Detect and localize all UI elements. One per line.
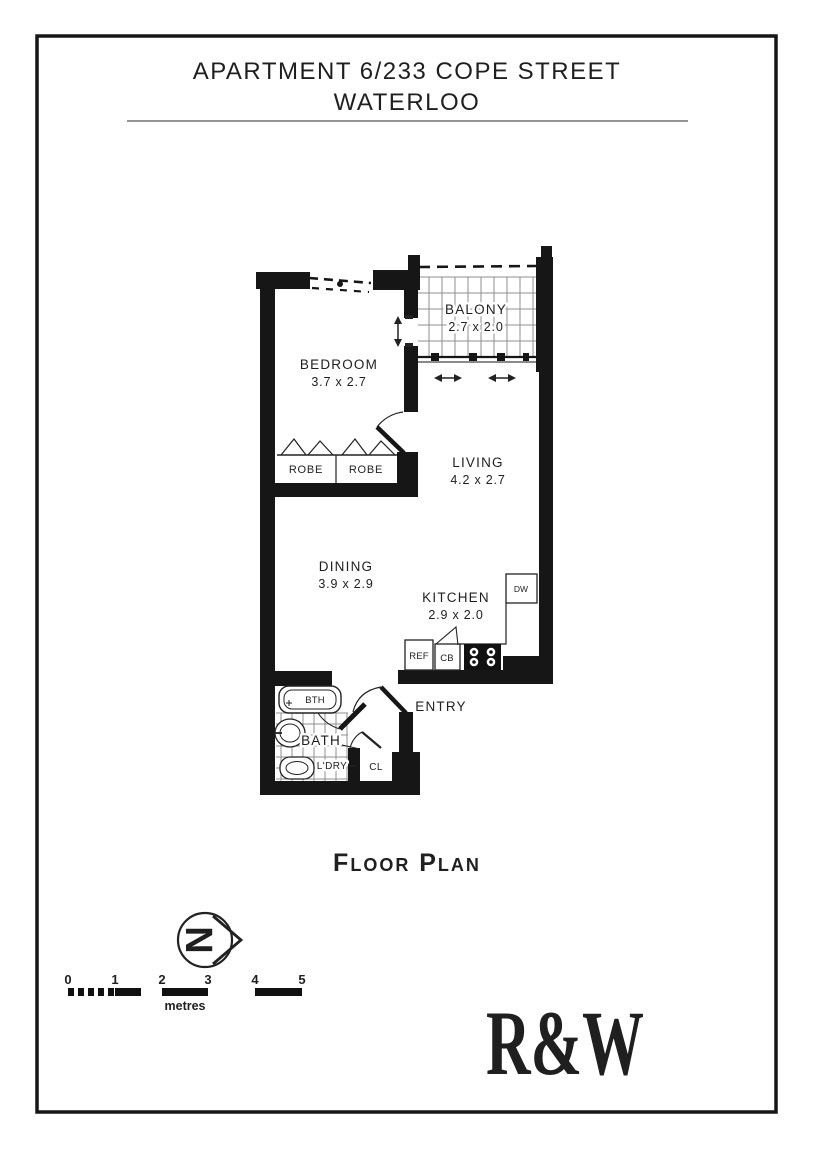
- fridge-label: REF: [409, 651, 429, 662]
- floor-plan-page: APARTMENT 6/233 COPE STREET WATERLOO: [0, 0, 814, 1150]
- page-subtitle: WATERLOO: [334, 89, 481, 116]
- robe-bifold-doors: [277, 439, 397, 483]
- robe-right-label: ROBE: [349, 464, 383, 476]
- bedroom-balcony-door-arrow: [394, 315, 413, 347]
- scale-tick-4: 4: [251, 972, 259, 987]
- balcony-sliding-track: [418, 353, 536, 362]
- bathtub-label: BTH: [305, 695, 325, 706]
- page-title: APARTMENT 6/233 COPE STREET: [193, 58, 622, 85]
- bedroom-label: BEDROOM: [300, 357, 378, 372]
- dining-label: DINING: [319, 559, 373, 574]
- scale-tick-0: 0: [64, 972, 71, 987]
- cupboard-door-line: [436, 627, 458, 645]
- agency-logo: R&W: [486, 992, 644, 1094]
- scale-tick-5: 5: [298, 972, 305, 987]
- scale-tick-2: 2: [158, 972, 165, 987]
- living-dims: 4.2 x 2.7: [450, 473, 505, 487]
- bedroom-window-dashed: [309, 278, 371, 292]
- north-indicator: N: [177, 913, 241, 967]
- page-border: [37, 36, 776, 1112]
- floor-plan-caption: Floor Plan: [333, 849, 481, 877]
- sliding-door-arrows: [434, 374, 516, 382]
- kitchen-label: KITCHEN: [422, 590, 490, 605]
- scale-tick-3: 3: [204, 972, 211, 987]
- scale-tick-1: 1: [111, 972, 118, 987]
- toilet: [280, 757, 314, 779]
- scale-unit-label: metres: [165, 999, 206, 1013]
- bedroom-door: [377, 412, 404, 453]
- balcony-edge-dashed: [419, 266, 536, 267]
- entry-label: ENTRY: [415, 699, 467, 714]
- closet-door: [350, 732, 381, 748]
- cupboard-label: CB: [440, 653, 454, 664]
- dining-dims: 3.9 x 2.9: [318, 577, 373, 591]
- floor-plan: BALONY 2.7 x 2.0 BEDROOM 3.7 x 2.7 LIVIN…: [256, 246, 553, 795]
- dishwasher-label: DW: [514, 584, 528, 594]
- balcony-label: BALONY: [445, 302, 507, 317]
- bath-label: BATH: [301, 733, 341, 748]
- robe-left-label: ROBE: [289, 464, 323, 476]
- laundry-label: L'DRY: [317, 761, 347, 772]
- kitchen-dims: 2.9 x 2.0: [428, 608, 483, 622]
- scale-bar-segments: [68, 988, 302, 996]
- north-letter: N: [177, 926, 219, 953]
- balcony-dims: 2.7 x 2.0: [448, 320, 503, 334]
- living-label: LIVING: [452, 455, 503, 470]
- cooktop: [464, 644, 501, 670]
- scale-bar: 0 1 2 3 4 5 metres: [64, 972, 305, 1013]
- closet-label: CL: [369, 762, 383, 773]
- bedroom-dims: 3.7 x 2.7: [311, 375, 366, 389]
